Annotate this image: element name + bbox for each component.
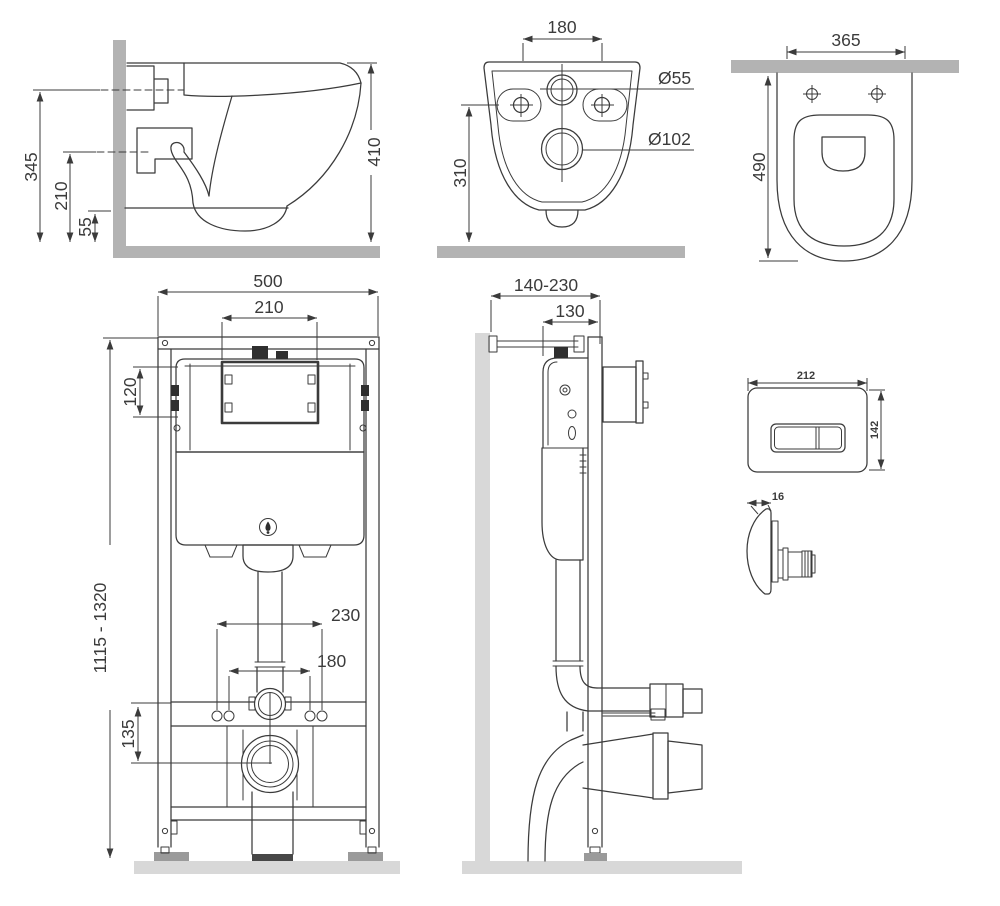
foot-plate-left [154, 852, 189, 861]
technical-drawing-canvas: 345 210 55 410 [0, 0, 1000, 906]
dim-210-frame: 210 [222, 297, 317, 360]
dim-label-120: 120 [120, 377, 140, 406]
flush-pipe-front [255, 572, 285, 692]
flush-plate-body [748, 388, 867, 472]
wall-bracket [603, 361, 648, 423]
frame-side-view: 140-230 130 [462, 275, 742, 874]
dim-180-frame: 180 [229, 651, 346, 710]
inlet-cap [554, 347, 568, 358]
dim-16: 16 [747, 491, 784, 514]
dim-label-500: 500 [253, 271, 282, 291]
dim-label-135: 135 [118, 719, 138, 748]
wall-fixing-rod [489, 336, 584, 352]
toilet-top-outline [777, 73, 912, 261]
floor-section [134, 861, 400, 874]
foot-plate-right [348, 852, 383, 861]
wall-section [475, 333, 490, 861]
cistern-side [542, 347, 588, 560]
dim-label-55: 55 [75, 217, 95, 236]
flush-plate-side [747, 509, 815, 594]
frame-front-view: 500 210 120 1115 - 1320 230 [90, 271, 400, 874]
dim-label-16: 16 [772, 491, 784, 503]
dim-label-height-range: 1115 - 1320 [90, 582, 110, 673]
dim-label-180-back: 180 [547, 17, 576, 37]
dim-365: 365 [787, 30, 905, 59]
lower-crossbar [171, 689, 366, 727]
dim-label-130: 130 [555, 301, 584, 321]
dim-label-210-frame: 210 [254, 297, 283, 317]
dim-label-212: 212 [797, 370, 815, 382]
bolt-hole [305, 711, 315, 721]
bolt-hole [212, 711, 222, 721]
dim-410: 410 [347, 63, 384, 242]
dim-label-230: 230 [331, 605, 360, 625]
dim-label-310: 310 [450, 158, 470, 187]
foot-plate [584, 853, 607, 861]
toilet-side-view: 345 210 55 410 [21, 40, 384, 258]
access-window [222, 362, 318, 423]
dim-142: 142 [869, 390, 885, 470]
dim-label-142: 142 [869, 421, 881, 439]
dim-label-180-frame: 180 [317, 651, 346, 671]
floor-section [437, 246, 685, 258]
flush-plate-view: 212 142 16 [747, 370, 885, 594]
wall-section [731, 60, 959, 73]
floor-section [462, 861, 742, 874]
dim-120: 120 [120, 367, 178, 417]
dim-label-490: 490 [749, 152, 769, 181]
cistern-front [171, 346, 369, 572]
dim-label-depth-range: 140-230 [514, 275, 578, 295]
dim-label-dia102: Ø102 [648, 129, 691, 149]
flush-bend-side [553, 560, 702, 720]
dim-490: 490 [749, 76, 798, 261]
bolt-hole [224, 711, 234, 721]
dim-label-dia55: Ø55 [658, 68, 691, 88]
dim-55: 55 [75, 211, 111, 242]
dim-height-range: 1115 - 1320 [90, 338, 158, 858]
flush-plate-front [748, 388, 867, 472]
toilet-side-profile [97, 63, 361, 231]
threaded-bracket [603, 367, 636, 422]
bolt-hole [317, 711, 327, 721]
dim-label-365: 365 [831, 30, 860, 50]
dim-dia102: Ø102 [583, 129, 694, 150]
drain-bend-side [528, 712, 702, 861]
toilet-top-view: 365 490 [731, 30, 959, 261]
dim-label-410: 410 [364, 137, 384, 166]
dim-label-345: 345 [21, 152, 41, 181]
floor-section [113, 246, 380, 258]
toilet-back-view: 180 Ø55 Ø102 310 [437, 17, 694, 258]
toilet-installation-diagram: 345 210 55 410 [0, 0, 1000, 906]
dim-130: 130 [543, 301, 598, 356]
inlet-connector [252, 346, 268, 359]
drain-pipe-cap [252, 854, 293, 861]
flush-button [771, 424, 845, 452]
dim-180-back: 180 [523, 17, 602, 61]
wall-section [113, 40, 126, 258]
dim-label-210-side: 210 [51, 181, 71, 210]
toilet-back-outline [484, 62, 640, 227]
